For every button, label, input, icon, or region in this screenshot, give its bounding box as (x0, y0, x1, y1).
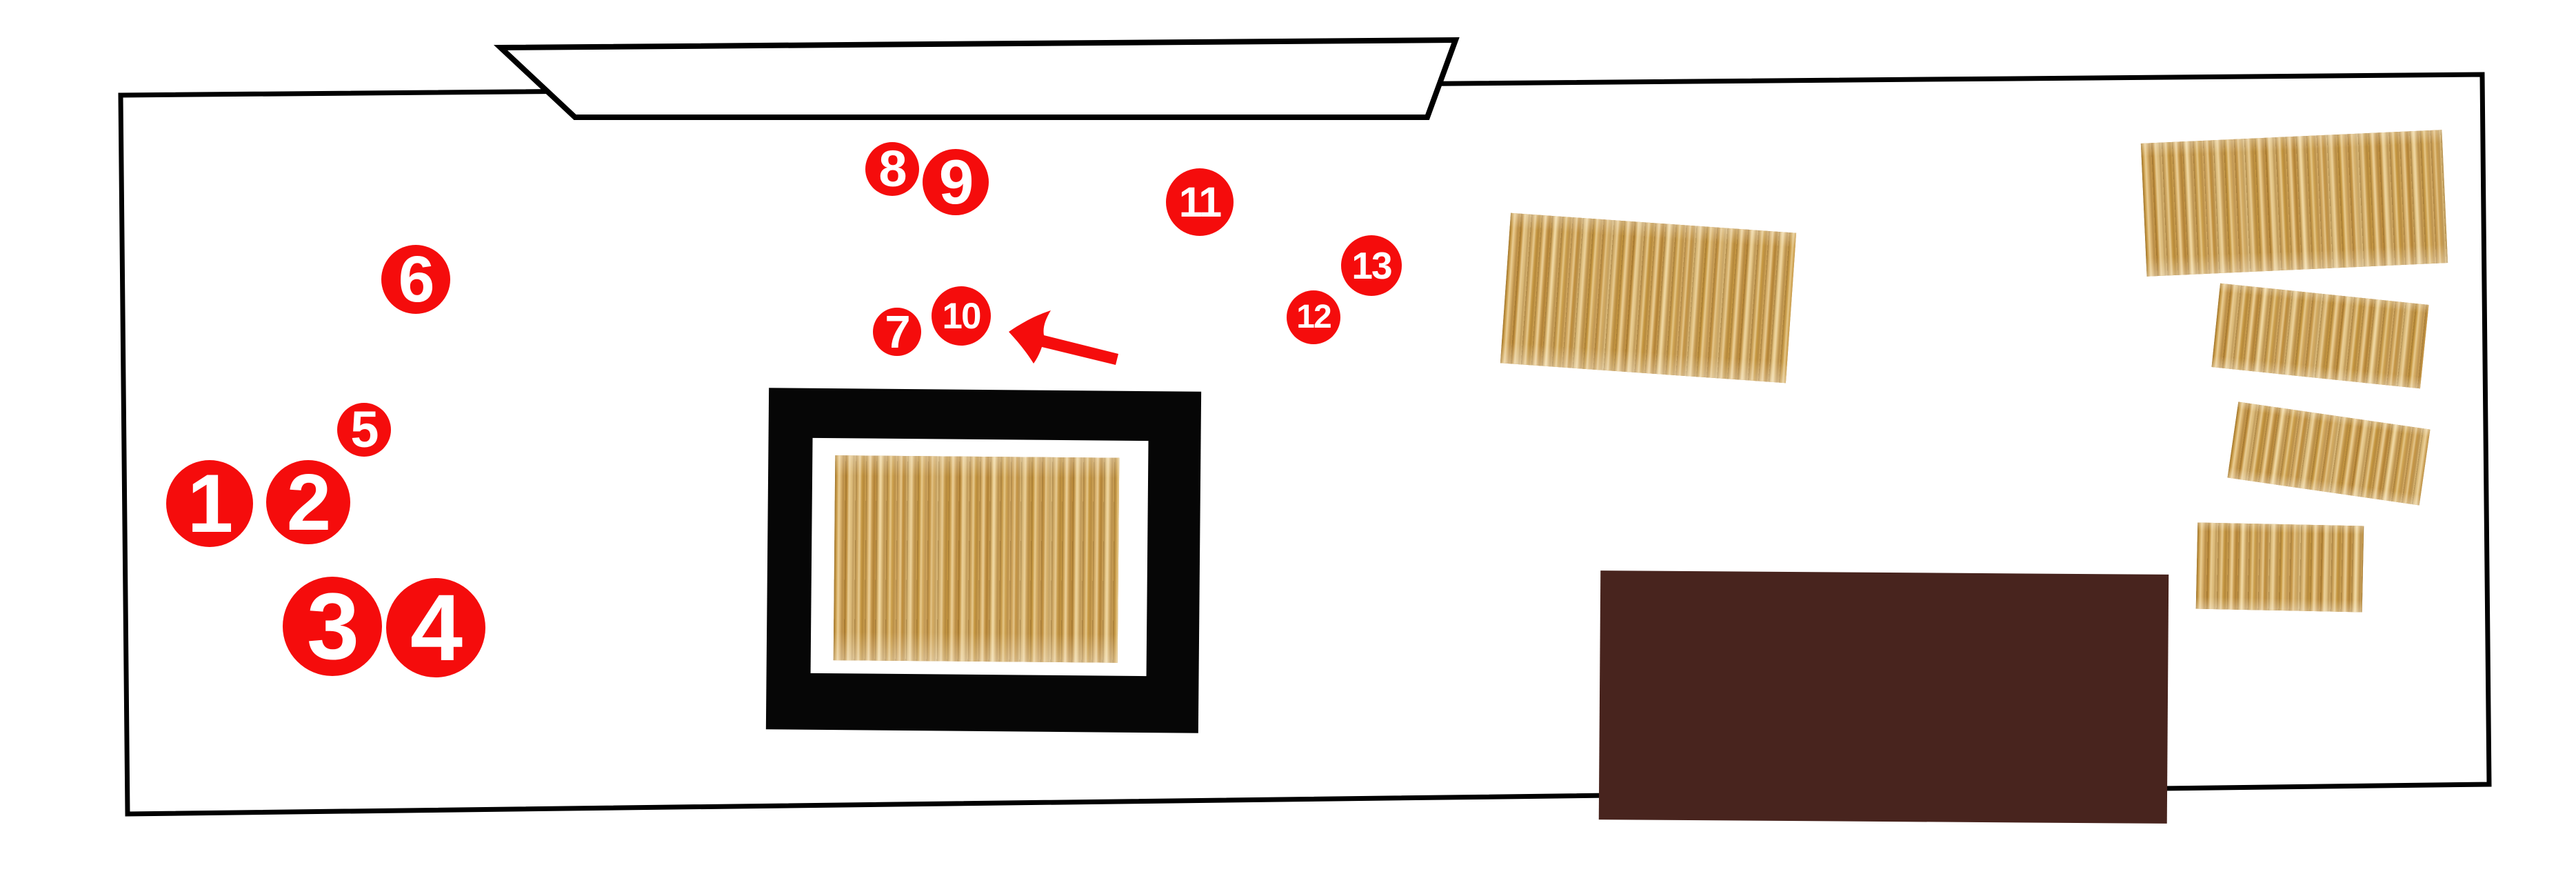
annotation-arrow-icon (1009, 310, 1118, 365)
annotation-arrow-svg (0, 0, 2576, 874)
scene-canvas: 12345678910111213 (0, 0, 2576, 874)
